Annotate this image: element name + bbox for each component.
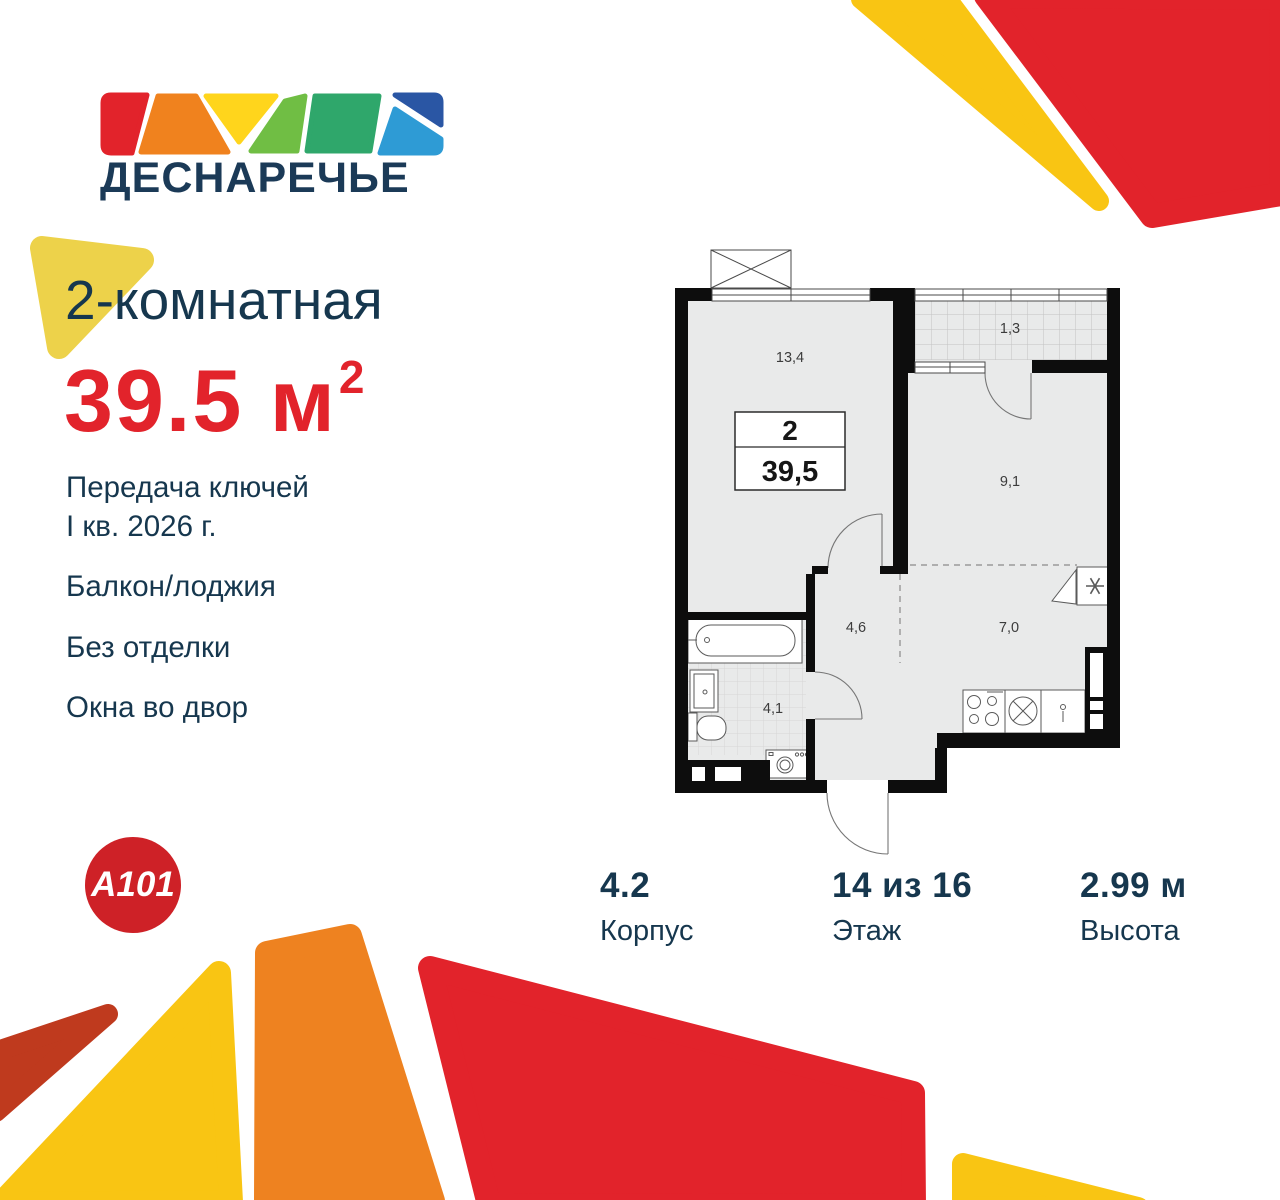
feature-windows: Окна во двор	[66, 688, 486, 727]
stat-building: 4.2 Корпус	[600, 866, 694, 948]
label-bedroom-area: 9,1	[1000, 474, 1020, 490]
developer-logo: A101	[85, 837, 181, 933]
feature-finishing: Без отделки	[66, 628, 486, 667]
washing-machine	[766, 750, 810, 778]
area-value: 39.5 м	[64, 351, 337, 450]
stat-height: 2.99 м Высота	[1080, 866, 1187, 948]
feature-keys-date: Передача ключей I кв. 2026 г.	[66, 468, 486, 546]
floor-plan: 2 39,5 13,4 1,3 9,1 4,6 7,0 4,1	[660, 240, 1130, 860]
bathtub	[688, 618, 802, 663]
bedroom-window	[915, 362, 985, 373]
label-hall-area: 4,6	[846, 620, 866, 636]
decor-yellow-bottom-right	[963, 1164, 1138, 1200]
stat-floor-value: 14 из 16	[832, 866, 972, 906]
stat-building-label: Корпус	[600, 915, 694, 948]
logo-shape-teal	[307, 96, 379, 151]
toilet	[688, 713, 726, 741]
plan-spec-box: 2 39,5	[735, 412, 845, 490]
stat-height-value: 2.99 м	[1080, 866, 1187, 906]
plan-rooms-count: 2	[782, 415, 798, 446]
stat-floor: 14 из 16 Этаж	[832, 866, 972, 948]
area-headline: 39.5 м2	[64, 350, 362, 452]
feature-list: Передача ключей I кв. 2026 г. Балкон/лод…	[66, 468, 486, 748]
label-kitchen-area: 7,0	[999, 620, 1019, 636]
stat-height-label: Высота	[1080, 915, 1187, 948]
logo-shape-red	[103, 95, 147, 153]
decor-orange-bottom	[266, 936, 433, 1200]
feature-balcony: Балкон/лоджия	[66, 567, 486, 606]
entrance-door	[827, 793, 888, 854]
developer-logo-text: A101	[91, 865, 175, 905]
kitchen-sink	[1005, 690, 1041, 733]
label-bath-area: 4,1	[763, 701, 783, 717]
project-logo	[100, 92, 452, 156]
ac-unit-box	[711, 250, 791, 288]
rooms-title: 2-комнатная	[65, 268, 383, 332]
area-superscript: 2	[339, 351, 365, 403]
kitchen-counter	[1041, 690, 1085, 733]
living-room-window	[712, 289, 870, 301]
decor-red-bottom	[430, 968, 914, 1200]
loggia-window	[915, 289, 1107, 301]
label-living-area: 13,4	[776, 350, 804, 366]
project-name: ДЕСНАРЕЧЬЕ	[100, 154, 460, 203]
stat-building-value: 4.2	[600, 866, 694, 906]
plan-total-area: 39,5	[762, 456, 818, 488]
label-loggia-area: 1,3	[1000, 321, 1020, 337]
stat-floor-label: Этаж	[832, 915, 972, 948]
stove	[963, 690, 1005, 733]
bathroom-sink	[690, 670, 718, 712]
